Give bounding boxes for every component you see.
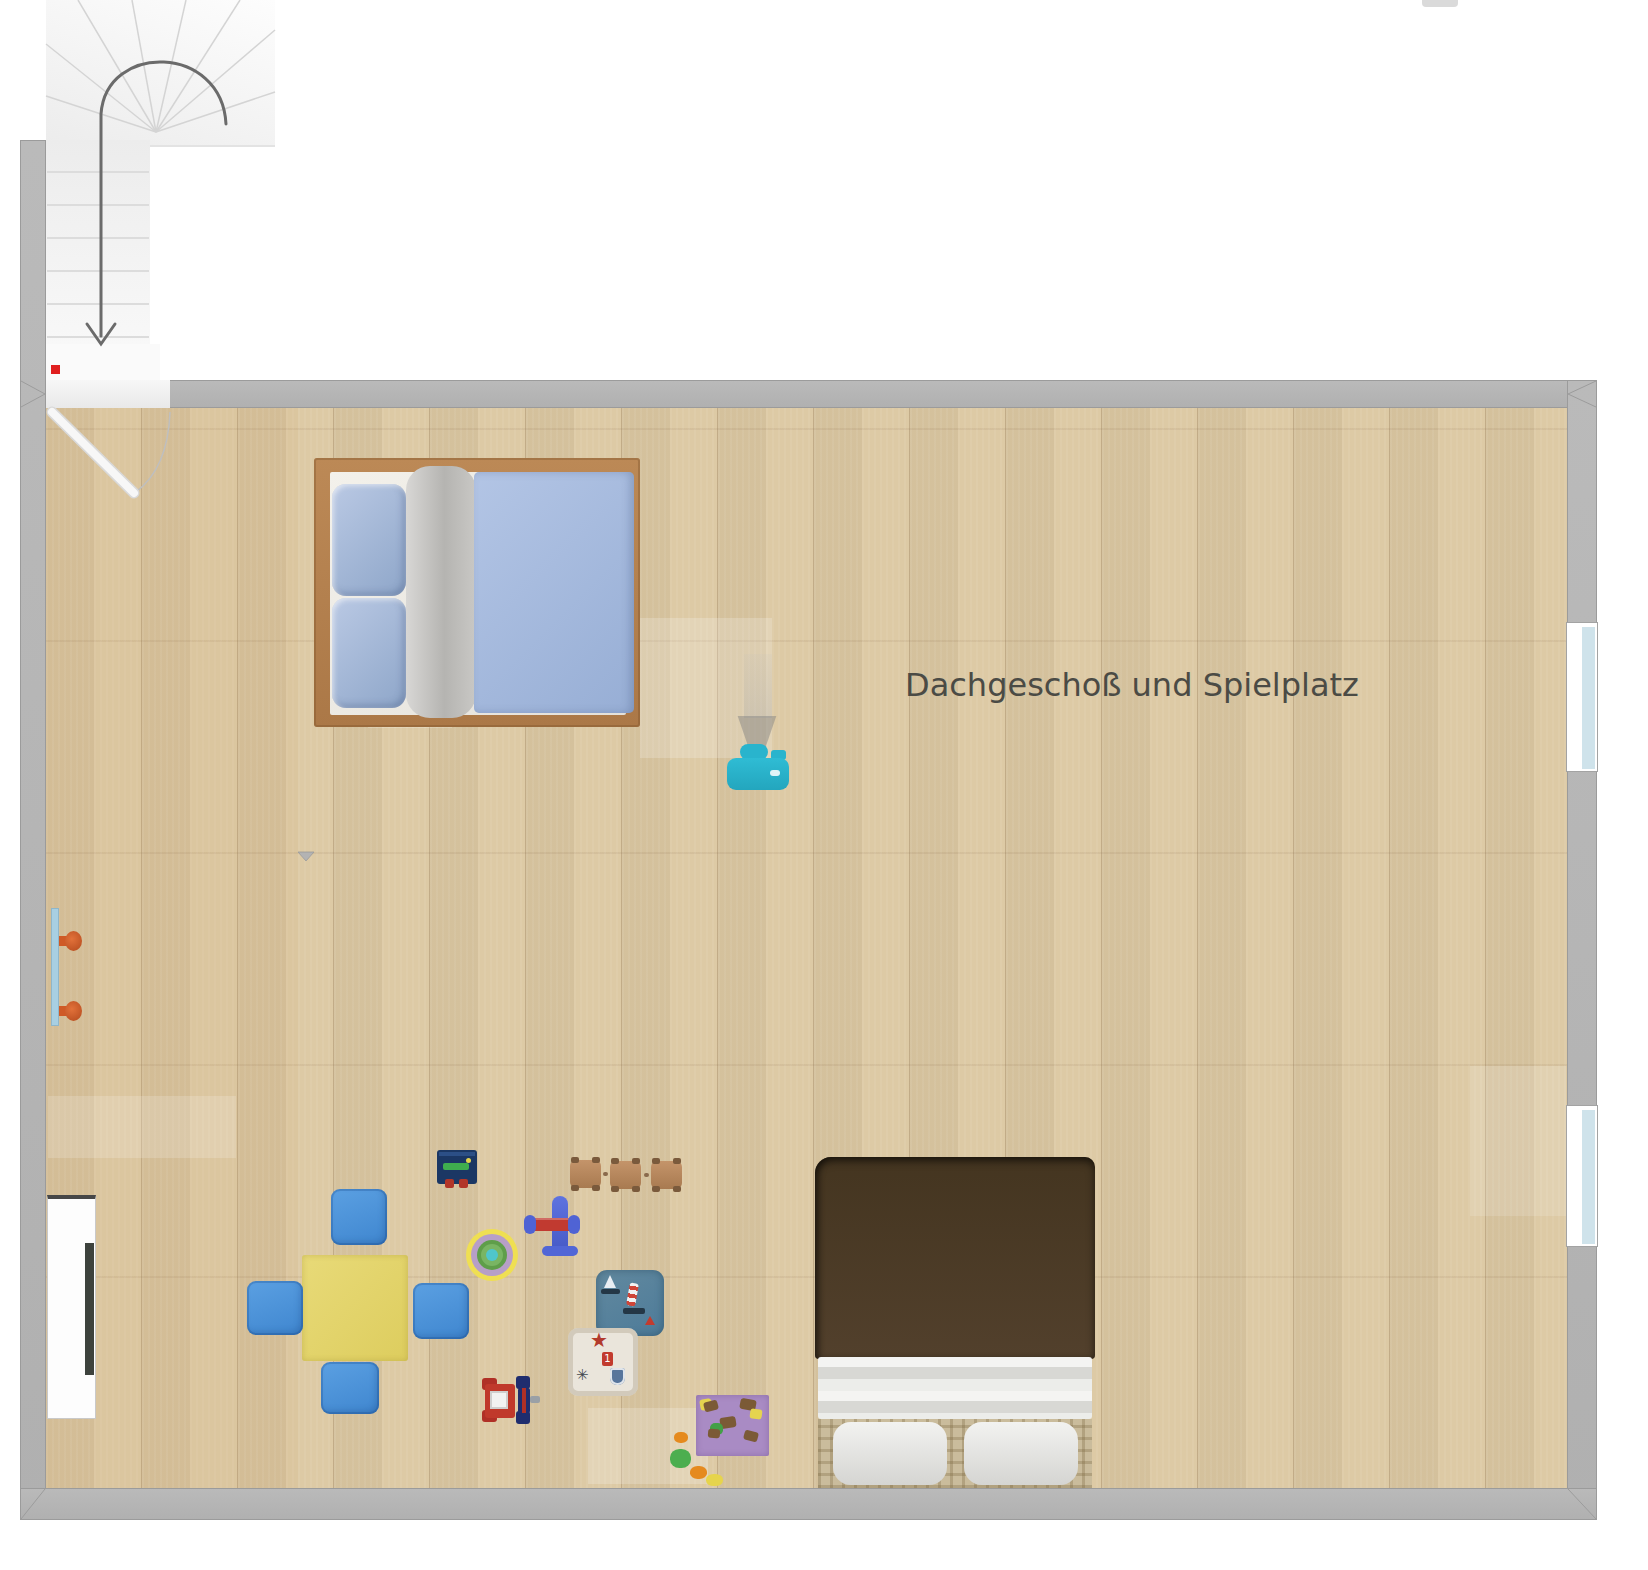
- train-car: [651, 1161, 682, 1189]
- top-right-artifact: [1422, 0, 1458, 7]
- rug-purple[interactable]: [696, 1395, 769, 1456]
- toy-train[interactable]: [570, 1158, 686, 1190]
- scattered-toy-yellow[interactable]: [706, 1474, 723, 1486]
- star-icon: ★: [590, 1328, 608, 1352]
- plane-tail: [542, 1246, 578, 1256]
- door-threshold: [46, 380, 170, 408]
- train-wheel: [571, 1185, 579, 1191]
- floor-plan-canvas: ★ 1 ✳ Dach: [0, 0, 1648, 1570]
- window-pane: [1582, 1110, 1595, 1244]
- plan-title[interactable]: Dachgeschoß und Spielplatz: [905, 666, 1359, 704]
- floor-cushion-bottom[interactable]: [321, 1362, 379, 1414]
- register-dot: [466, 1158, 471, 1163]
- plane-wingtip: [568, 1215, 580, 1234]
- train-wheel: [592, 1157, 600, 1163]
- car-cab-white: [490, 1391, 508, 1409]
- snowflake-icon: ✳: [576, 1366, 589, 1384]
- toy-plane[interactable]: [524, 1194, 580, 1264]
- wall-right: [1567, 380, 1597, 1520]
- register-top-line: [439, 1152, 475, 1156]
- projector-indicator: [770, 770, 780, 776]
- car-hitch-pin: [530, 1396, 540, 1403]
- target-mat[interactable]: [466, 1229, 518, 1281]
- bed-pillow: [332, 484, 406, 596]
- double-bed-blue[interactable]: [314, 458, 640, 727]
- stair-landing: [46, 344, 160, 380]
- register-foot: [459, 1179, 468, 1188]
- train-coupler: [603, 1172, 608, 1176]
- sailboat-hull: [601, 1289, 620, 1294]
- window-right-upper[interactable]: [1566, 622, 1598, 772]
- bed-pillow-zone: [818, 1419, 1092, 1488]
- train-wheel: [571, 1157, 579, 1163]
- train-wheel: [673, 1186, 681, 1192]
- bed-runner-blanket: [406, 466, 476, 718]
- projector[interactable]: [727, 744, 789, 790]
- bed-sheet-band: [818, 1357, 1092, 1419]
- rug-patch-brown: [703, 1399, 719, 1412]
- double-bed-brown[interactable]: [815, 1157, 1095, 1488]
- train-wheel: [632, 1186, 640, 1192]
- register-foot: [445, 1179, 454, 1188]
- train-wheel: [611, 1186, 619, 1192]
- toy-car[interactable]: [482, 1376, 540, 1424]
- train-wheel: [652, 1186, 660, 1192]
- train-wheel: [611, 1158, 619, 1164]
- stair-marker-red: [51, 365, 60, 374]
- projector-beam-column: [744, 654, 772, 718]
- plane-wingtip: [524, 1215, 536, 1234]
- kids-table[interactable]: [302, 1255, 408, 1361]
- floor-cushion-left[interactable]: [247, 1281, 303, 1335]
- train-car: [610, 1161, 641, 1189]
- sideboard[interactable]: [47, 1195, 96, 1419]
- lighthouse: [626, 1282, 639, 1306]
- bed-pillow: [332, 598, 406, 708]
- window-pane: [1582, 627, 1595, 769]
- digit-block: 1: [602, 1352, 613, 1366]
- register-green-band: [443, 1163, 469, 1170]
- ship-hull: [623, 1308, 645, 1314]
- rug-patch-brown: [743, 1429, 759, 1442]
- coat-rack[interactable]: [50, 905, 84, 1029]
- scattered-toy-orange[interactable]: [674, 1432, 688, 1443]
- bed-pillow: [833, 1422, 947, 1485]
- sailboat-sail: [604, 1275, 616, 1288]
- stair-straight-run: [46, 140, 150, 344]
- car-rear-stripe: [522, 1388, 526, 1413]
- toy-register[interactable]: [437, 1150, 479, 1188]
- scattered-toy-orange[interactable]: [690, 1466, 707, 1479]
- rug-patch-brown: [708, 1428, 721, 1438]
- train-wheel: [652, 1158, 660, 1164]
- rug-patch-yellow: [749, 1408, 762, 1420]
- train-wheel: [592, 1185, 600, 1191]
- bed-duvet: [474, 472, 634, 713]
- target-center: [486, 1249, 498, 1261]
- train-car: [570, 1160, 601, 1188]
- bed-duvet-dark: [815, 1157, 1095, 1359]
- train-wheel: [673, 1158, 681, 1164]
- shield-icon: [610, 1368, 625, 1385]
- coat-hook: [65, 931, 82, 951]
- buoy-cone: [645, 1316, 655, 1325]
- wall-bottom: [20, 1488, 1597, 1520]
- wall-left: [20, 140, 46, 1520]
- window-right-lower[interactable]: [1566, 1105, 1598, 1247]
- rug-ocean[interactable]: [596, 1270, 664, 1336]
- rug-star[interactable]: ★ 1 ✳: [568, 1328, 638, 1396]
- coat-hook: [65, 1001, 82, 1021]
- stair-winder-fan: [46, 0, 275, 146]
- sideboard-front-bar: [85, 1243, 94, 1375]
- coat-rack-rail: [51, 908, 59, 1026]
- train-wheel: [632, 1158, 640, 1164]
- floor-cushion-top[interactable]: [331, 1189, 387, 1245]
- bed-pillow: [964, 1422, 1078, 1485]
- train-coupler: [644, 1173, 649, 1177]
- scattered-toy-green[interactable]: [670, 1449, 691, 1468]
- floor-cushion-right[interactable]: [413, 1283, 469, 1339]
- projector-body: [727, 758, 789, 790]
- wall-top: [46, 380, 1597, 408]
